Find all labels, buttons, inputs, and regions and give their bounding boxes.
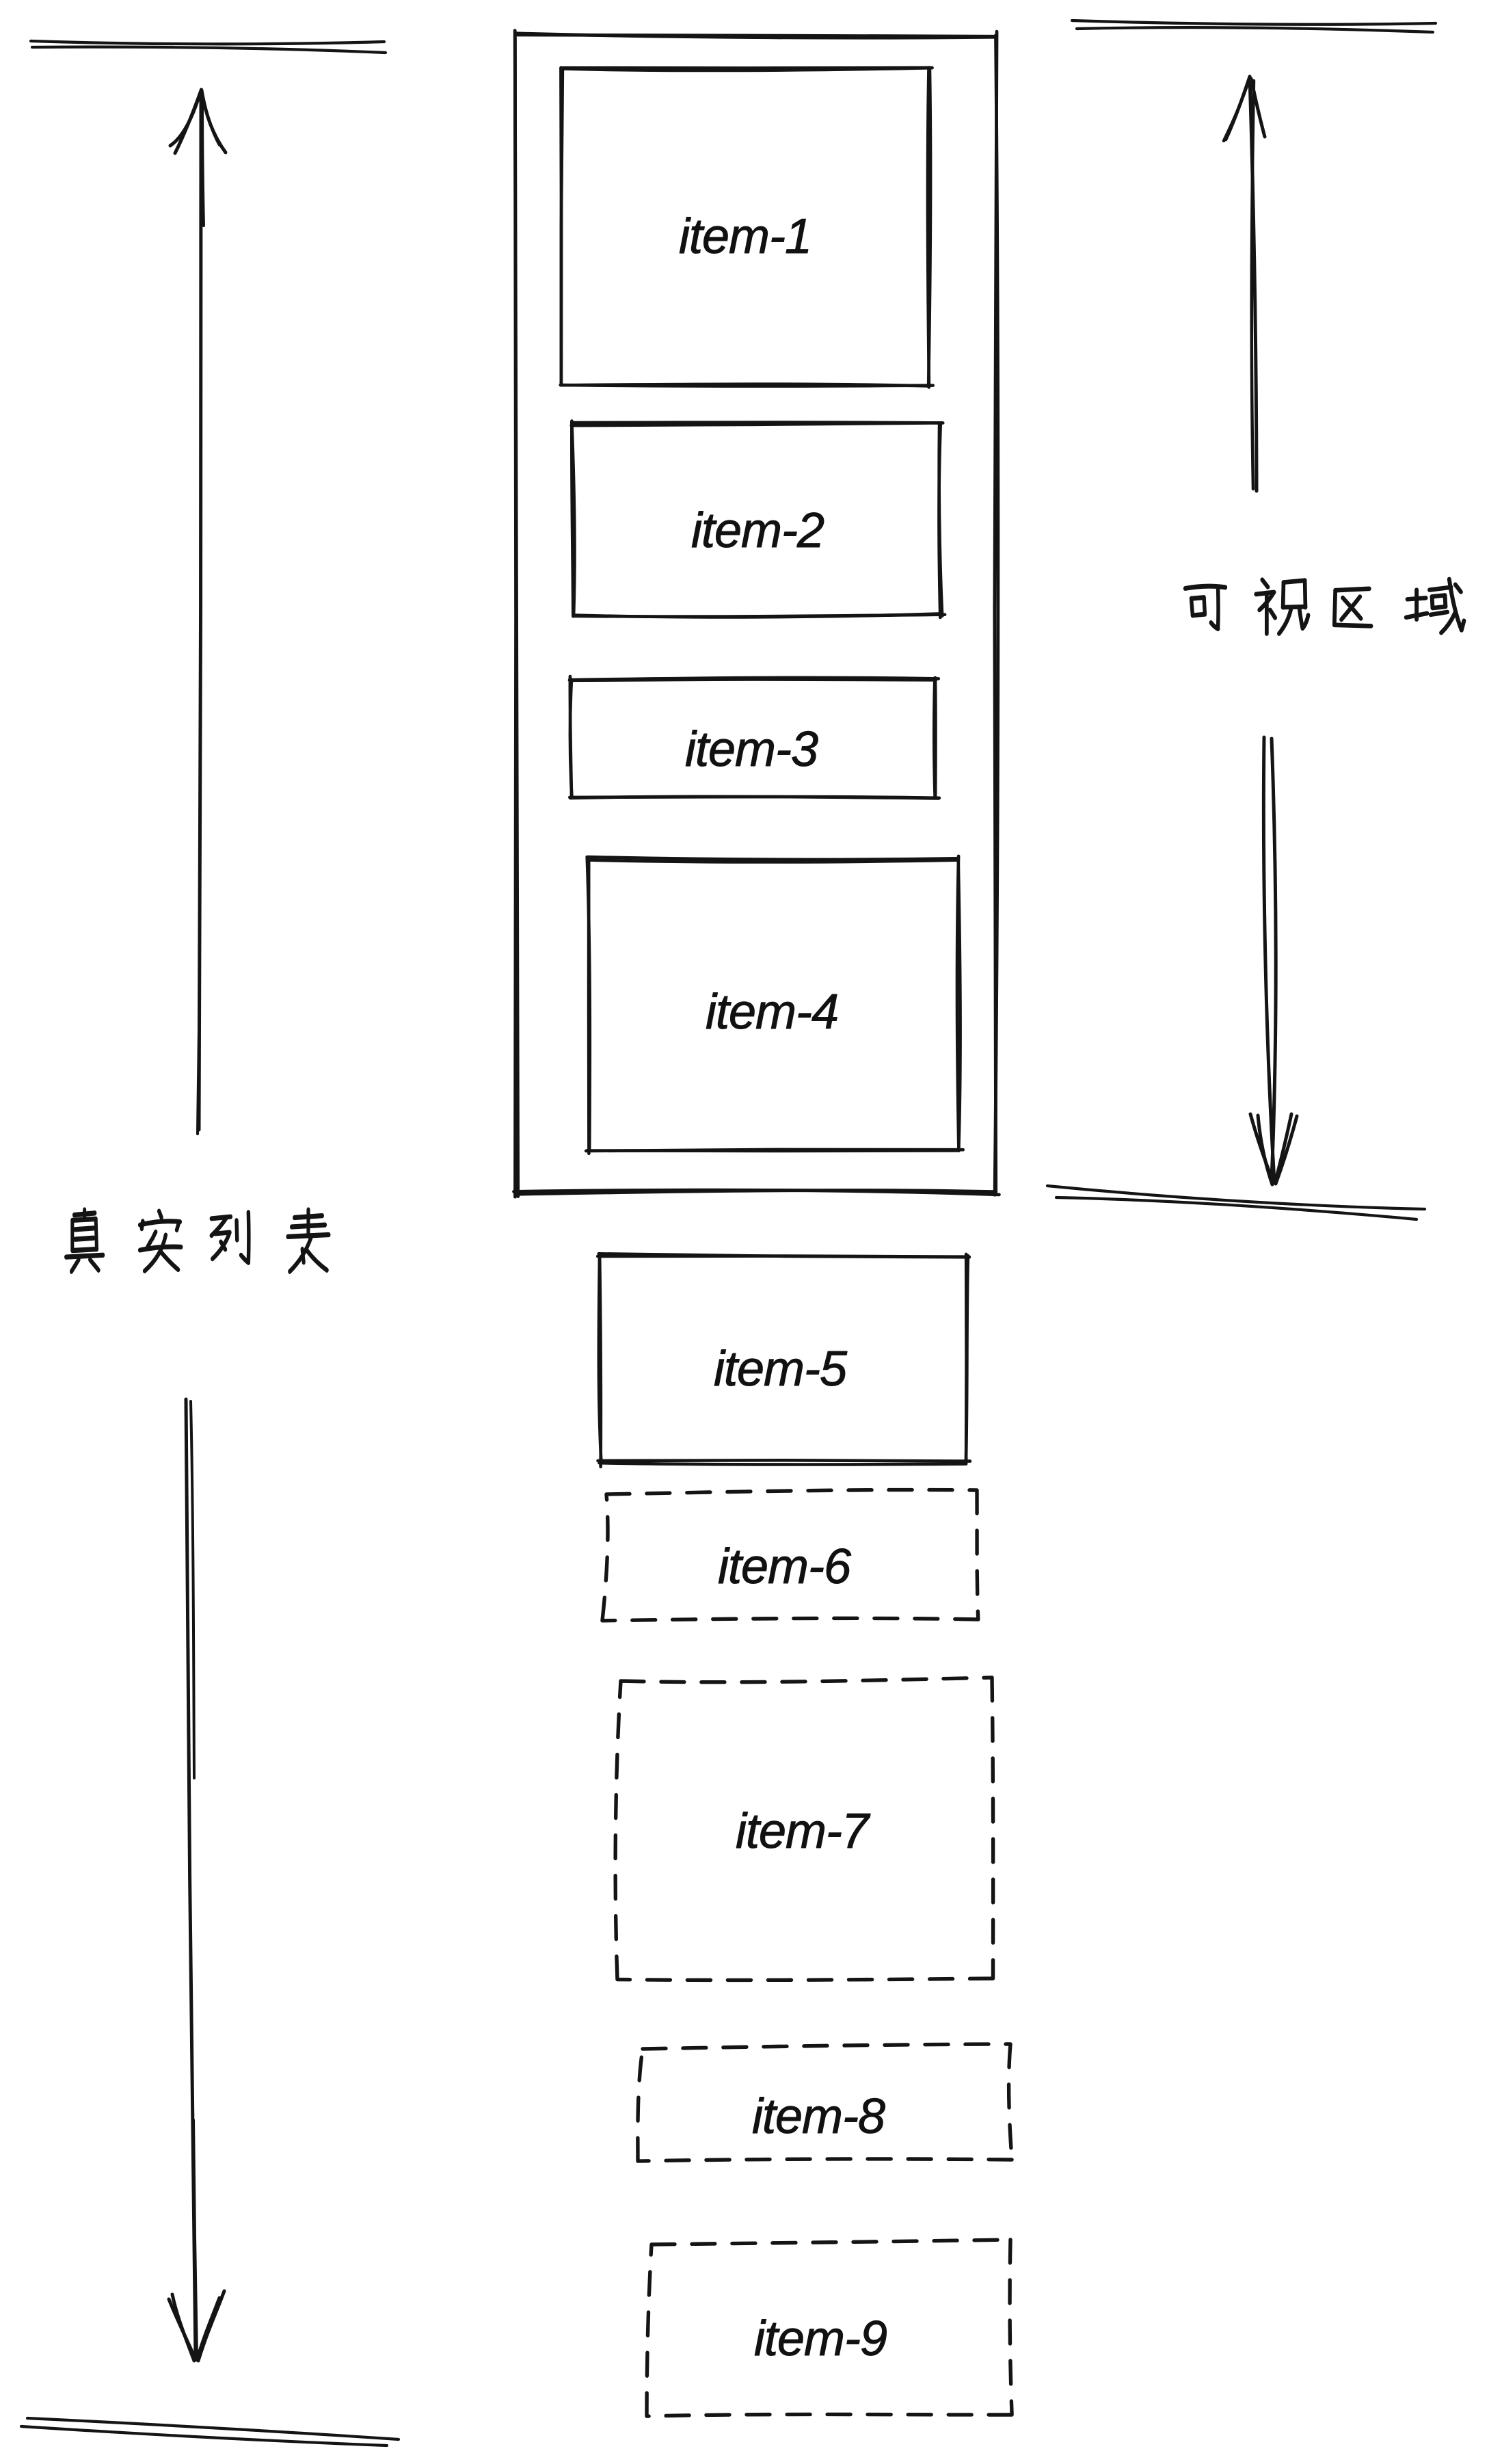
svg-text:item-2: item-2 [691,503,824,558]
svg-text:item-9: item-9 [754,2311,887,2366]
svg-text:item-7: item-7 [736,1804,871,1859]
svg-text:item-5: item-5 [714,1342,848,1396]
svg-text:item-3: item-3 [685,722,818,777]
svg-text:item-6: item-6 [718,1539,852,1594]
svg-text:item-1: item-1 [679,209,811,264]
svg-text:item-4: item-4 [706,985,838,1039]
svg-text:item-8: item-8 [752,2089,885,2144]
